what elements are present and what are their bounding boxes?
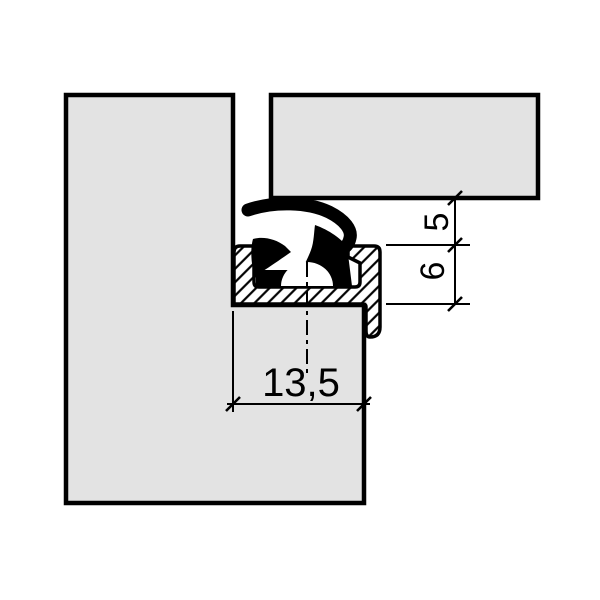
dimension-label-channel-height: 6 [414,262,452,281]
dimension-label-gap: 5 [418,213,456,232]
sash-profile-section [271,95,538,198]
dimension-label-channel-width: 13,5 [262,361,340,405]
seal-profile-technical-drawing: 5 6 13,5 [0,0,600,600]
drawing-canvas: 5 6 13,5 [0,0,600,600]
